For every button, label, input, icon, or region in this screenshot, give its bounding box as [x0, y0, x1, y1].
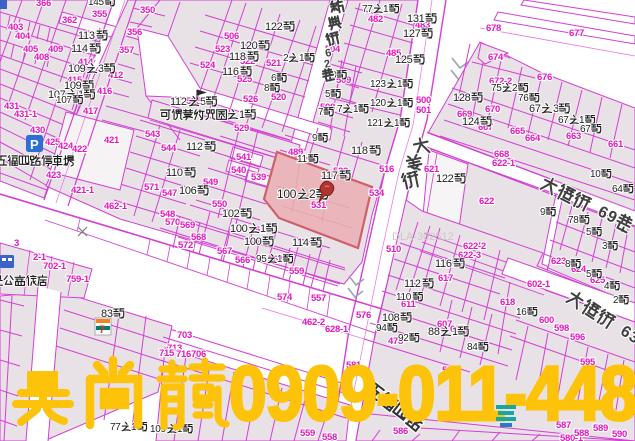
svg-text:430: 430: [30, 125, 45, 136]
svg-text:462-2: 462-2: [302, 317, 325, 328]
svg-text:7: 7: [99, 324, 105, 336]
svg-text:77: 77: [362, 4, 373, 15]
svg-text:122: 122: [265, 21, 283, 33]
svg-text:356: 356: [127, 27, 142, 38]
svg-text:11: 11: [297, 154, 308, 165]
svg-text:76: 76: [518, 93, 529, 104]
svg-text:107: 107: [56, 95, 73, 106]
svg-text:67: 67: [558, 115, 569, 126]
svg-text:703: 703: [177, 330, 192, 341]
svg-text:409: 409: [48, 44, 63, 55]
svg-text:7: 7: [337, 104, 343, 115]
svg-text:113: 113: [78, 30, 95, 42]
svg-text:123: 123: [370, 79, 387, 90]
svg-text:114: 114: [71, 43, 88, 55]
svg-text:100: 100: [230, 223, 248, 235]
svg-text:576: 576: [356, 310, 371, 321]
svg-text:617: 617: [438, 273, 453, 284]
svg-text:664: 664: [525, 133, 541, 144]
svg-text:2: 2: [283, 53, 289, 64]
svg-text:75: 75: [491, 83, 502, 94]
svg-text:117: 117: [321, 170, 338, 182]
svg-text:516: 516: [379, 164, 394, 175]
svg-text:366: 366: [36, 0, 51, 9]
svg-text:116: 116: [435, 258, 452, 270]
svg-text:501: 501: [416, 105, 432, 116]
svg-text:661: 661: [608, 139, 624, 150]
svg-text:0909-011-448: 0909-011-448: [229, 351, 635, 437]
svg-text:125: 125: [395, 54, 413, 66]
svg-text:128: 128: [453, 92, 471, 104]
svg-text:110: 110: [166, 167, 183, 179]
svg-text:92: 92: [398, 333, 409, 344]
svg-text:566: 566: [235, 255, 250, 266]
svg-text:572: 572: [178, 240, 193, 251]
svg-text:482: 482: [368, 14, 383, 25]
svg-text:2: 2: [309, 187, 316, 201]
svg-text:548: 548: [160, 209, 175, 220]
svg-text:462-1: 462-1: [104, 201, 128, 212]
svg-text:DLA-302512: DLA-302512: [392, 231, 454, 243]
svg-text:78: 78: [568, 215, 579, 226]
svg-text:408: 408: [34, 52, 49, 63]
svg-text:571: 571: [144, 182, 160, 193]
svg-text:77: 77: [110, 422, 121, 433]
svg-text:547: 547: [162, 188, 177, 199]
svg-text:421-1: 421-1: [71, 185, 95, 196]
svg-text:674: 674: [488, 52, 504, 63]
svg-text:529: 529: [234, 123, 249, 134]
svg-text:539: 539: [251, 172, 266, 183]
svg-text:716: 716: [176, 349, 191, 360]
svg-text:64: 64: [612, 184, 623, 195]
svg-text:422: 422: [72, 144, 87, 155]
svg-text:574: 574: [277, 292, 293, 303]
svg-text:568: 568: [191, 232, 206, 243]
svg-text:2-1: 2-1: [33, 252, 47, 263]
svg-text:88: 88: [428, 326, 440, 338]
svg-text:124: 124: [462, 116, 480, 128]
svg-text:116: 116: [222, 66, 239, 78]
svg-text:122: 122: [436, 173, 454, 185]
svg-text:702-1: 702-1: [43, 261, 67, 272]
svg-text:567: 567: [217, 246, 232, 257]
svg-text:598: 598: [554, 323, 569, 334]
svg-text:112: 112: [170, 96, 187, 108]
svg-text:534: 534: [369, 188, 385, 199]
svg-text:131: 131: [407, 13, 425, 25]
svg-text:663: 663: [566, 131, 581, 142]
svg-text:67: 67: [580, 124, 591, 135]
svg-text:112: 112: [404, 278, 421, 290]
svg-text:404: 404: [15, 31, 31, 42]
svg-text:145: 145: [88, 0, 105, 8]
svg-text:127: 127: [403, 28, 421, 40]
svg-text:676: 676: [537, 72, 552, 83]
svg-text:118: 118: [351, 145, 368, 157]
svg-text:506: 506: [224, 31, 239, 42]
svg-text:121: 121: [367, 118, 384, 129]
svg-text:544: 544: [161, 143, 177, 154]
svg-text:596: 596: [570, 332, 585, 343]
svg-text:623: 623: [551, 256, 566, 267]
svg-text:521: 521: [266, 58, 282, 69]
svg-text:677: 677: [569, 28, 584, 39]
svg-text:670: 670: [485, 104, 500, 115]
svg-text:110: 110: [396, 292, 412, 303]
svg-text:355: 355: [92, 9, 108, 20]
svg-text:510: 510: [386, 244, 401, 255]
svg-text:759-1: 759-1: [66, 274, 90, 285]
svg-text:423: 423: [46, 170, 61, 181]
svg-text:541: 541: [236, 152, 252, 163]
svg-text:102: 102: [222, 208, 240, 220]
svg-text:100: 100: [277, 187, 297, 201]
svg-text:P: P: [30, 137, 39, 152]
svg-text:67: 67: [529, 103, 541, 115]
svg-text:543: 543: [145, 129, 160, 140]
svg-text:569: 569: [180, 220, 195, 231]
svg-text:520: 520: [271, 92, 286, 103]
svg-text:16: 16: [516, 307, 527, 318]
svg-text:120: 120: [370, 98, 387, 109]
svg-text:665: 665: [510, 126, 526, 137]
svg-text:421: 421: [104, 135, 120, 146]
svg-text:357: 357: [119, 45, 134, 56]
svg-text:540: 540: [231, 165, 246, 176]
svg-text:523: 523: [215, 44, 230, 55]
svg-text:622: 622: [479, 196, 494, 207]
svg-text:622-1: 622-1: [492, 158, 516, 169]
svg-text:524: 524: [200, 60, 216, 71]
svg-text:112: 112: [186, 141, 203, 153]
svg-text:417: 417: [83, 106, 98, 117]
svg-text:362: 362: [62, 15, 77, 26]
svg-text:600: 600: [539, 315, 554, 326]
svg-text:628-1: 628-1: [325, 324, 349, 335]
svg-text:559: 559: [289, 266, 304, 277]
svg-text:10: 10: [590, 169, 601, 180]
svg-text:95: 95: [256, 254, 267, 265]
svg-text:118: 118: [229, 51, 246, 63]
svg-text:94: 94: [376, 323, 387, 334]
svg-text:3: 3: [14, 238, 19, 249]
svg-text:602-1: 602-1: [527, 279, 551, 290]
svg-text:416: 416: [97, 86, 112, 97]
svg-text:557: 557: [311, 293, 326, 304]
svg-text:350: 350: [140, 5, 155, 16]
svg-text:114: 114: [292, 237, 309, 249]
svg-text:100: 100: [244, 236, 262, 248]
svg-text:715: 715: [159, 348, 175, 359]
svg-text:106: 106: [179, 185, 197, 197]
svg-text:109: 109: [68, 63, 86, 75]
svg-text:618: 618: [500, 297, 515, 308]
svg-text:431-1: 431-1: [14, 109, 38, 120]
svg-text:526: 526: [243, 94, 258, 105]
svg-text:678: 678: [486, 23, 501, 34]
